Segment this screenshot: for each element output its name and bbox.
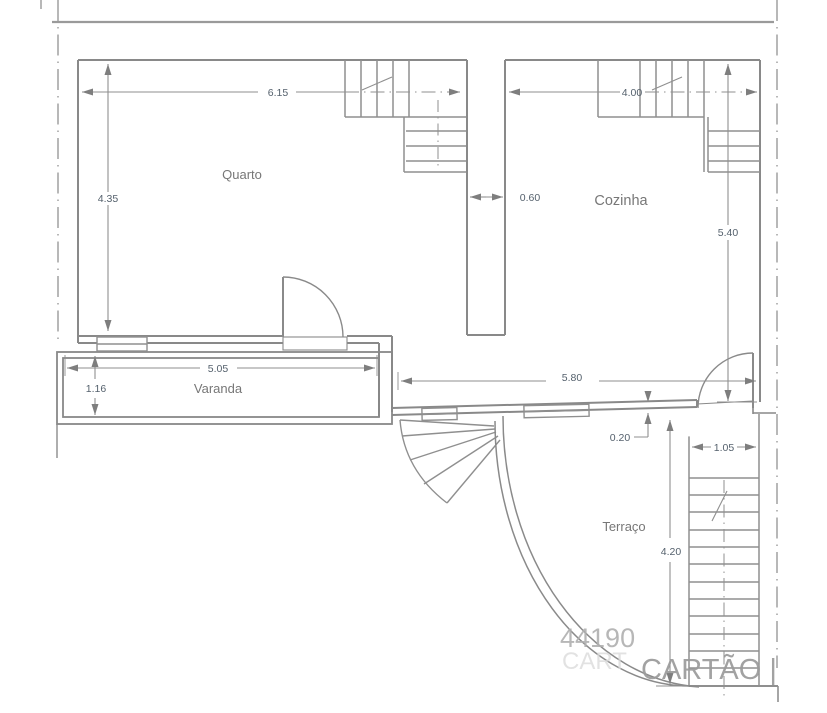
dimension-text-terraco-depth: 4.20 bbox=[661, 546, 682, 558]
dimension-text-cozinha-width: 4.00 bbox=[622, 87, 643, 99]
dimension-text-quarto-depth: 4.35 bbox=[98, 193, 119, 205]
dimension-text-wall-thickness: 0.20 bbox=[610, 432, 631, 444]
floor-plan-drawing: 6.15 4.00 4.35 0.60 5.40 5.05 1.16 5.80 … bbox=[0, 0, 827, 713]
dimension-text-terraco-wall: 5.80 bbox=[562, 372, 583, 384]
watermark-ghost: CART bbox=[562, 648, 627, 675]
dimension-text-stairs-width: 1.05 bbox=[714, 442, 735, 454]
room-label-varanda: Varanda bbox=[194, 381, 243, 396]
dimension-text-cozinha-depth: 5.40 bbox=[718, 227, 739, 239]
floor-plan-page: 6.15 4.00 4.35 0.60 5.40 5.05 1.16 5.80 … bbox=[0, 0, 827, 713]
dimension-text-varanda-width: 5.05 bbox=[208, 363, 229, 375]
watermark-name: CARTÃO | bbox=[641, 652, 777, 686]
room-label-cozinha: Cozinha bbox=[594, 193, 648, 209]
dimension-text-duct-width: 0.60 bbox=[520, 192, 541, 204]
dimension-text-varanda-depth: 1.16 bbox=[86, 383, 107, 395]
paper-background bbox=[0, 0, 827, 713]
room-label-terraco: Terraço bbox=[602, 519, 645, 534]
dimension-text-quarto-width: 6.15 bbox=[268, 87, 289, 99]
room-label-quarto: Quarto bbox=[222, 167, 262, 182]
